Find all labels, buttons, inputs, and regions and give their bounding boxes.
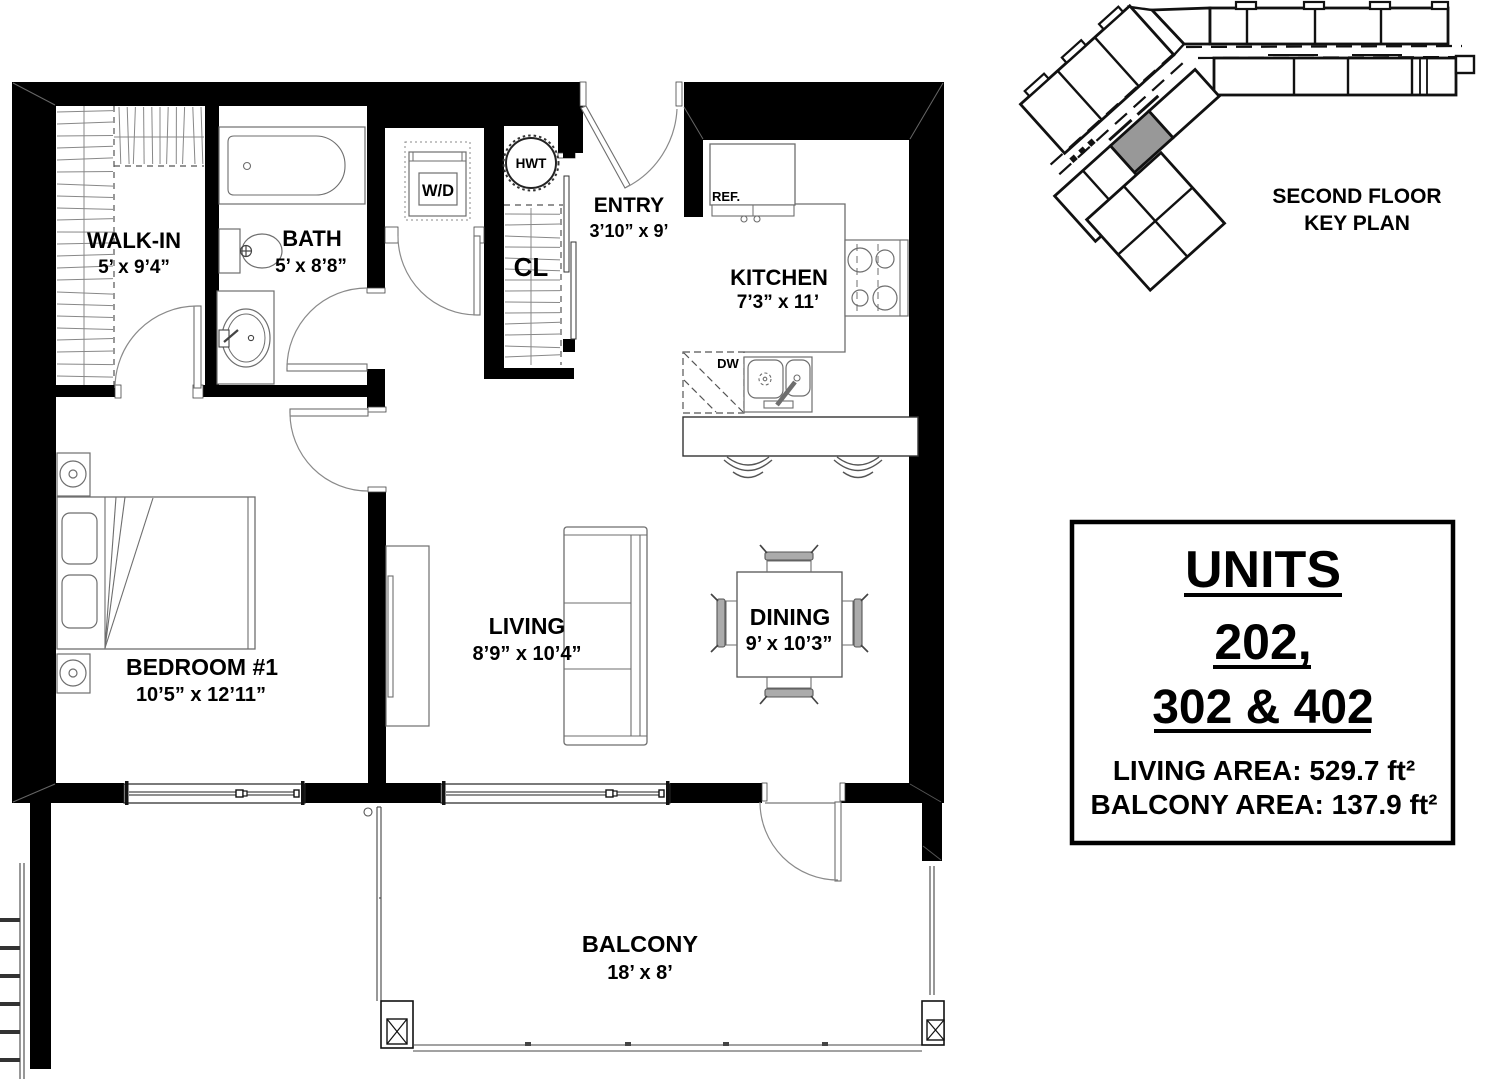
svg-text:LIVING AREA: 529.7 ft²: LIVING AREA: 529.7 ft² xyxy=(1113,755,1415,786)
svg-text:HWT: HWT xyxy=(516,156,547,171)
svg-text:BEDROOM #1: BEDROOM #1 xyxy=(126,654,278,680)
svg-text:KEY PLAN: KEY PLAN xyxy=(1304,212,1410,235)
svg-text:UNITS: UNITS xyxy=(1185,541,1341,599)
svg-text:SECOND FLOOR: SECOND FLOOR xyxy=(1272,185,1441,208)
svg-text:KITCHEN: KITCHEN xyxy=(730,265,828,290)
svg-text:8’9” x 10’4”: 8’9” x 10’4” xyxy=(473,643,582,665)
svg-text:3’10” x 9’: 3’10” x 9’ xyxy=(589,221,668,241)
svg-text:7’3” x 11’: 7’3” x 11’ xyxy=(737,292,819,313)
svg-text:202,: 202, xyxy=(1214,614,1311,670)
svg-text:302 & 402: 302 & 402 xyxy=(1152,681,1374,734)
svg-text:BALCONY: BALCONY xyxy=(582,931,699,957)
svg-text:LIVING: LIVING xyxy=(489,613,566,639)
svg-text:BATH: BATH xyxy=(282,226,341,251)
svg-text:W/D: W/D xyxy=(422,182,454,200)
svg-text:5’ x 9’4”: 5’ x 9’4” xyxy=(98,257,170,278)
svg-text:ENTRY: ENTRY xyxy=(594,194,664,217)
svg-text:18’ x 8’: 18’ x 8’ xyxy=(607,962,673,984)
svg-text:10’5” x 12’11”: 10’5” x 12’11” xyxy=(136,684,266,706)
svg-text:DW: DW xyxy=(717,356,739,371)
svg-text:BALCONY AREA: 137.9 ft²: BALCONY AREA: 137.9 ft² xyxy=(1091,789,1438,820)
svg-text:REF.: REF. xyxy=(712,189,740,204)
svg-text:DINING: DINING xyxy=(750,604,831,630)
svg-text:WALK-IN: WALK-IN xyxy=(87,228,181,253)
svg-text:9’ x 10’3”: 9’ x 10’3” xyxy=(746,633,833,655)
svg-text:CL: CL xyxy=(514,252,549,282)
svg-text:5’ x 8’8”: 5’ x 8’8” xyxy=(275,256,347,277)
